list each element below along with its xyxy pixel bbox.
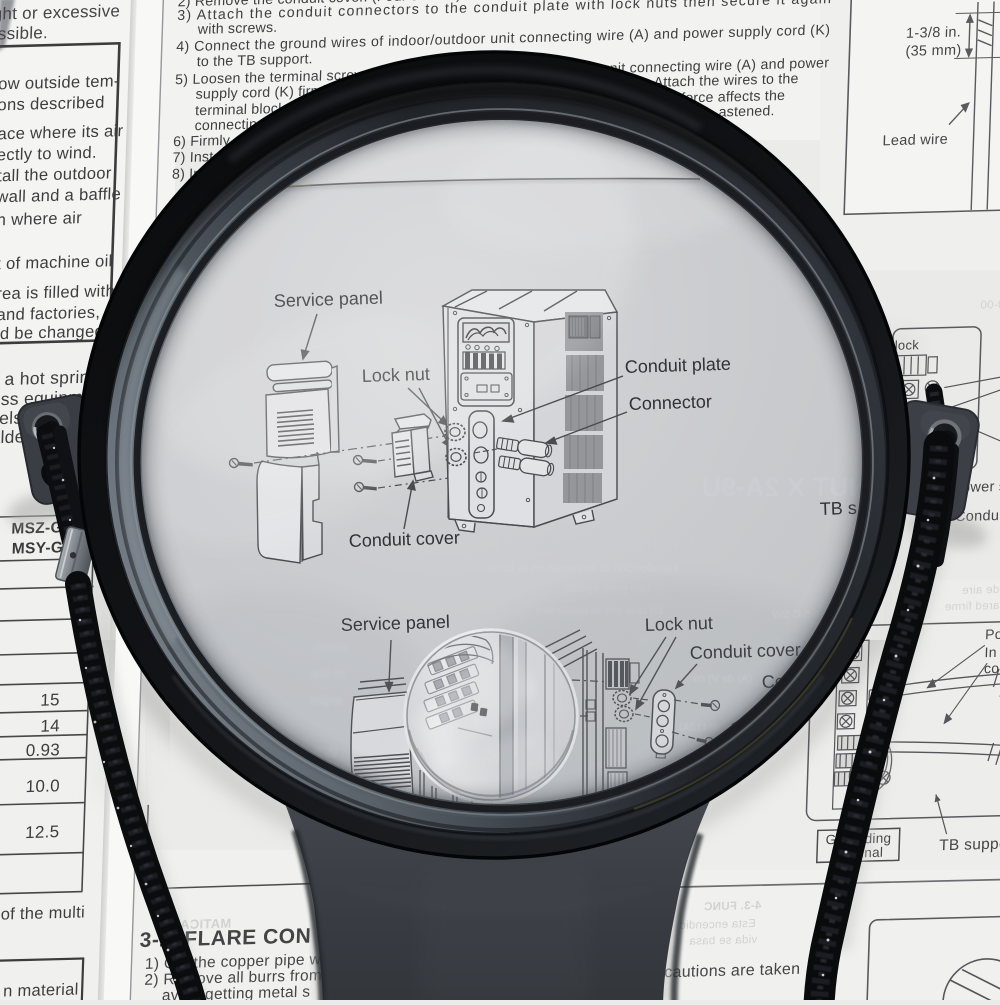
svg-text:Conduit plate: Conduit plate <box>624 354 731 377</box>
svg-text:12.5: 12.5 <box>25 822 60 842</box>
svg-text:ace where its air: ace where its air <box>0 121 124 143</box>
svg-text:Conduit cover: Conduit cover <box>348 528 460 551</box>
svg-text:ssible.: ssible. <box>0 23 48 43</box>
svg-text:1-3/8 in.: 1-3/8 in. <box>906 24 962 41</box>
svg-text:ons described: ons described <box>0 93 105 115</box>
svg-text:t of machine oil: t of machine oil <box>0 251 113 273</box>
svg-text:of the multi: of the multi <box>0 903 85 923</box>
svg-text:Lead wire: Lead wire <box>882 132 948 150</box>
svg-text:0.93: 0.93 <box>26 740 61 760</box>
svg-text:co: co <box>984 660 1000 676</box>
svg-text:Esta encendid: Esta encendid <box>679 918 756 932</box>
svg-text:astened.: astened. <box>718 103 775 120</box>
svg-text:14: 14 <box>40 716 60 735</box>
svg-text:ectly to wind.: ectly to wind. <box>0 143 97 165</box>
svg-text:TB suppo: TB suppo <box>939 835 1000 854</box>
svg-text:rea is filled with: rea is filled with <box>0 281 115 303</box>
svg-text:15: 15 <box>40 690 60 709</box>
svg-text:4-3. FUNC: 4-3. FUNC <box>704 900 762 913</box>
svg-text:n where air: n where air <box>0 208 83 229</box>
svg-text:vida se basa: vida se basa <box>689 934 758 948</box>
svg-text:-2. FUNCIONAMIENTO: -2. FUNCIONAMIENTO <box>499 533 706 555</box>
svg-text:(35 mm): (35 mm) <box>905 42 962 59</box>
svg-text:wall and a baffle: wall and a baffle <box>0 184 121 206</box>
svg-text:is de aire: is de aire <box>962 584 1000 597</box>
svg-text:40-00: 40-00 <box>980 299 1000 312</box>
svg-text:tall the outdoor: tall the outdoor <box>0 163 112 185</box>
svg-text:to the TB support.: to the TB support. <box>196 51 313 70</box>
svg-text:Po: Po <box>985 626 1000 642</box>
svg-text:In: In <box>984 644 997 660</box>
svg-text:with screws.: with screws. <box>197 20 278 38</box>
svg-text:MATICA: MATICA <box>179 916 231 932</box>
svg-text:lock: lock <box>895 337 920 353</box>
svg-text:introduccion al ambiente en la: introduccion al ambiente en la forma <box>484 561 678 575</box>
svg-text:Connector: Connector <box>628 391 712 414</box>
svg-text:light or excessive: light or excessive <box>0 1 121 24</box>
svg-text:10.0: 10.0 <box>25 776 60 796</box>
svg-text:pared firme: pared firme <box>944 600 1000 614</box>
svg-text:cautions are taken: cautions are taken <box>664 961 801 982</box>
svg-text:ld be changed: ld be changed <box>0 321 104 343</box>
svg-text:ow outside tem-: ow outside tem- <box>0 71 120 93</box>
svg-text:n material: n material <box>3 981 79 1000</box>
